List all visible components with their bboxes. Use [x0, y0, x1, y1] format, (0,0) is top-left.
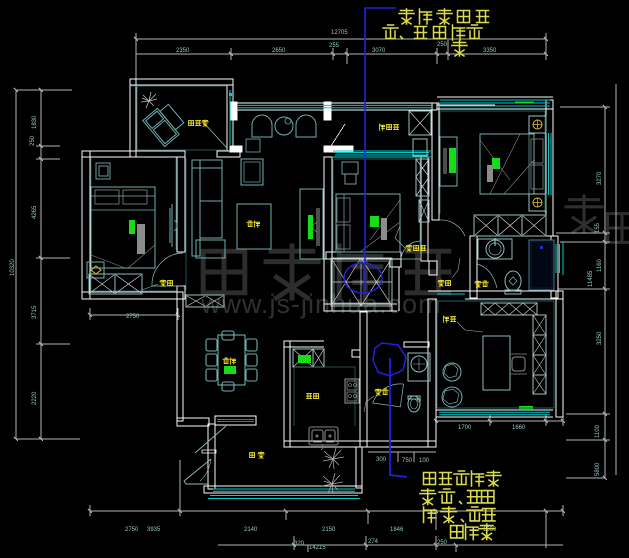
svg-text:3935: 3935	[147, 527, 161, 533]
svg-text:750: 750	[402, 458, 413, 464]
svg-text:250: 250	[30, 135, 36, 146]
svg-text:2350: 2350	[176, 48, 190, 54]
svg-text:2750: 2750	[126, 314, 140, 320]
svg-text:3250: 3250	[597, 331, 603, 345]
svg-text:4265: 4265	[32, 205, 38, 219]
svg-text:250: 250	[437, 42, 448, 48]
svg-text:1160: 1160	[597, 258, 603, 272]
svg-text:100: 100	[419, 458, 430, 464]
svg-text:1846: 1846	[390, 527, 404, 533]
svg-text:10320: 10320	[10, 259, 16, 276]
svg-text:2650: 2650	[272, 48, 286, 54]
svg-text:3715: 3715	[32, 305, 38, 319]
svg-text:12705: 12705	[331, 30, 348, 36]
svg-text:3070: 3070	[372, 48, 386, 54]
svg-text:5800: 5800	[595, 462, 601, 476]
svg-text:2750: 2750	[125, 527, 139, 533]
svg-text:3350: 3350	[483, 48, 497, 54]
svg-text:320: 320	[294, 541, 305, 547]
svg-text:2140: 2140	[244, 527, 258, 533]
svg-text:2220: 2220	[32, 391, 38, 405]
svg-text:3270: 3270	[597, 171, 603, 185]
svg-text:155: 155	[595, 222, 601, 233]
svg-text:11485: 11485	[588, 270, 594, 287]
svg-text:1660: 1660	[512, 425, 526, 431]
svg-text:1830: 1830	[32, 115, 38, 129]
svg-text:300: 300	[376, 457, 387, 463]
svg-text:250: 250	[437, 540, 448, 546]
svg-text:255: 255	[329, 43, 340, 49]
svg-text:2150: 2150	[322, 527, 336, 533]
svg-text:1700: 1700	[458, 425, 472, 431]
svg-text:274: 274	[368, 539, 379, 545]
svg-text:www.js-jinhua.com: www.js-jinhua.com	[200, 289, 442, 319]
svg-text:1100: 1100	[595, 424, 601, 438]
svg-text:14215: 14215	[309, 545, 326, 551]
